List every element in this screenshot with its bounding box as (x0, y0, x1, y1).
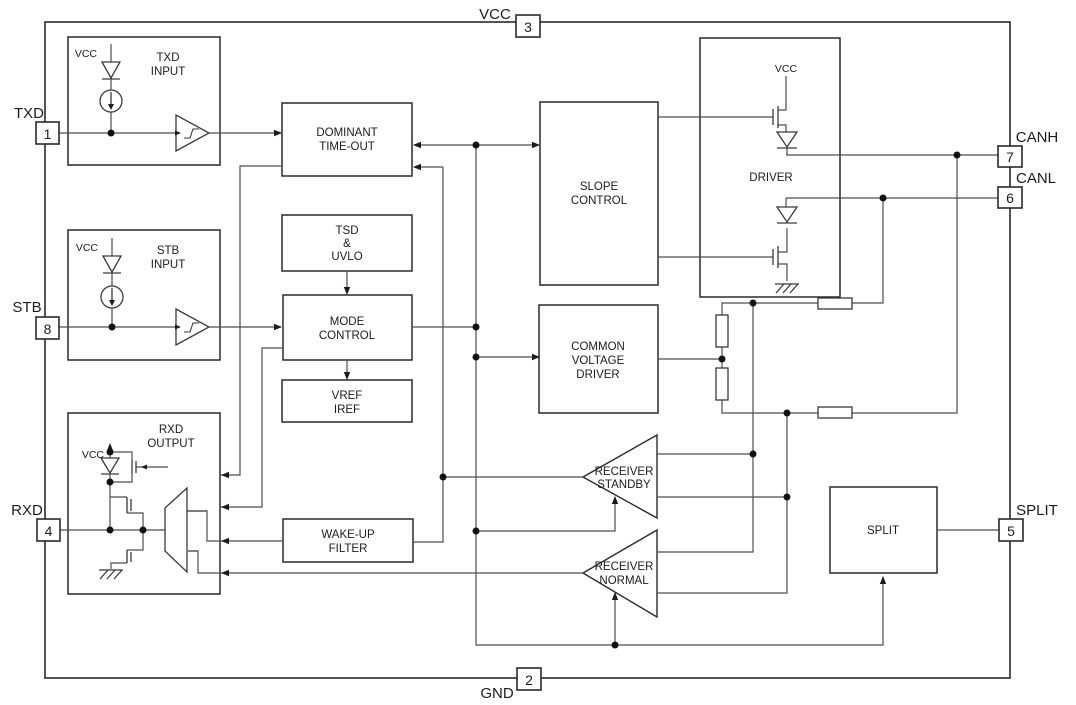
slope-control-label-2: CONTROL (571, 195, 628, 207)
pin-rxd-number: 4 (45, 523, 53, 539)
txd-input-label-1: TXD (157, 52, 180, 64)
receiver-standby-label-1: RECEIVER (595, 466, 654, 478)
driver-block (700, 38, 840, 297)
diagram-svg: 1 TXD 8 STB 4 RXD 3 VCC 2 GND 7 CANH (0, 0, 1076, 705)
stb-input-label-1: STB (157, 245, 180, 257)
pin-gnd-number: 2 (525, 672, 533, 688)
pin-canh-number: 7 (1006, 149, 1014, 165)
pin-split-number: 5 (1007, 523, 1015, 539)
pin-vcc: 3 VCC (479, 6, 540, 37)
slope-control-block (540, 102, 658, 285)
rxd-vcc-label: VCC (82, 449, 105, 461)
tsd-uvlo-label-1: TSD (336, 225, 359, 237)
receiver-standby-label-2: STANDBY (597, 479, 651, 491)
divider-resistor-upper (716, 315, 728, 347)
pin-canl-label: CANL (1016, 170, 1056, 187)
can-transceiver-block-diagram: 1 TXD 8 STB 4 RXD 3 VCC 2 GND 7 CANH (0, 0, 1076, 705)
pin-canl-number: 6 (1006, 190, 1014, 206)
mode-control-label-2: CONTROL (319, 330, 376, 342)
pin-gnd: 2 GND (480, 668, 541, 702)
cvd-label-2: VOLTAGE (572, 355, 625, 367)
driver-vcc-label: VCC (775, 63, 798, 75)
pin-rxd: 4 RXD (11, 502, 60, 541)
pin-canl: 6 CANL (998, 170, 1056, 208)
dominant-timeout-label-2: TIME-OUT (319, 141, 375, 153)
cvd-label-3: DRIVER (576, 369, 619, 381)
rxd-output-block (68, 413, 220, 594)
pin-txd-number: 1 (44, 126, 52, 142)
pin-rxd-label: RXD (11, 502, 43, 519)
tsd-uvlo-label-3: UVLO (331, 251, 362, 263)
vref-iref-label-2: IREF (334, 404, 360, 416)
rxd-output-label-2: OUTPUT (147, 438, 194, 450)
pin-stb-label: STB (12, 299, 41, 316)
pin-vcc-label: VCC (479, 6, 511, 23)
driver-label: DRIVER (749, 172, 792, 184)
pin-canh-label: CANH (1016, 129, 1059, 146)
slope-control-label-1: SLOPE (580, 181, 619, 193)
tsd-uvlo-label-2: & (343, 238, 351, 250)
receiver-normal-label-1: RECEIVER (595, 561, 654, 573)
canl-series-resistor (818, 298, 852, 309)
stb-input-label-2: INPUT (151, 259, 186, 271)
wakeup-filter-label-2: FILTER (329, 543, 368, 555)
cvd-label-1: COMMON (571, 341, 625, 353)
txd-vcc-label: VCC (75, 48, 98, 60)
receiver-normal-label-2: NORMAL (599, 575, 649, 587)
rxd-output-label-1: RXD (159, 424, 183, 436)
pin-stb-number: 8 (44, 321, 52, 337)
wakeup-filter-label-1: WAKE-UP (321, 529, 375, 541)
pin-gnd-label: GND (480, 685, 514, 702)
divider-resistor-lower (716, 368, 728, 400)
pin-canh: 7 CANH (998, 129, 1058, 167)
pin-txd-label: TXD (14, 105, 44, 122)
pin-stb: 8 STB (12, 299, 59, 339)
receiver-normal-triangle (583, 530, 657, 617)
dominant-timeout-label-1: DOMINANT (316, 127, 377, 139)
dominant-timeout-block (282, 103, 412, 176)
canh-series-resistor (818, 407, 852, 418)
txd-input-label-2: INPUT (151, 66, 186, 78)
blocks (68, 37, 937, 617)
pin-split-label: SPLIT (1016, 502, 1058, 519)
pin-txd: 1 TXD (14, 105, 59, 144)
pin-vcc-number: 3 (524, 19, 532, 35)
pin-split: 5 SPLIT (999, 502, 1058, 541)
stb-vcc-label: VCC (76, 242, 99, 254)
vref-iref-label-1: VREF (332, 390, 363, 402)
split-label: SPLIT (867, 525, 899, 537)
mode-control-label-1: MODE (330, 316, 365, 328)
